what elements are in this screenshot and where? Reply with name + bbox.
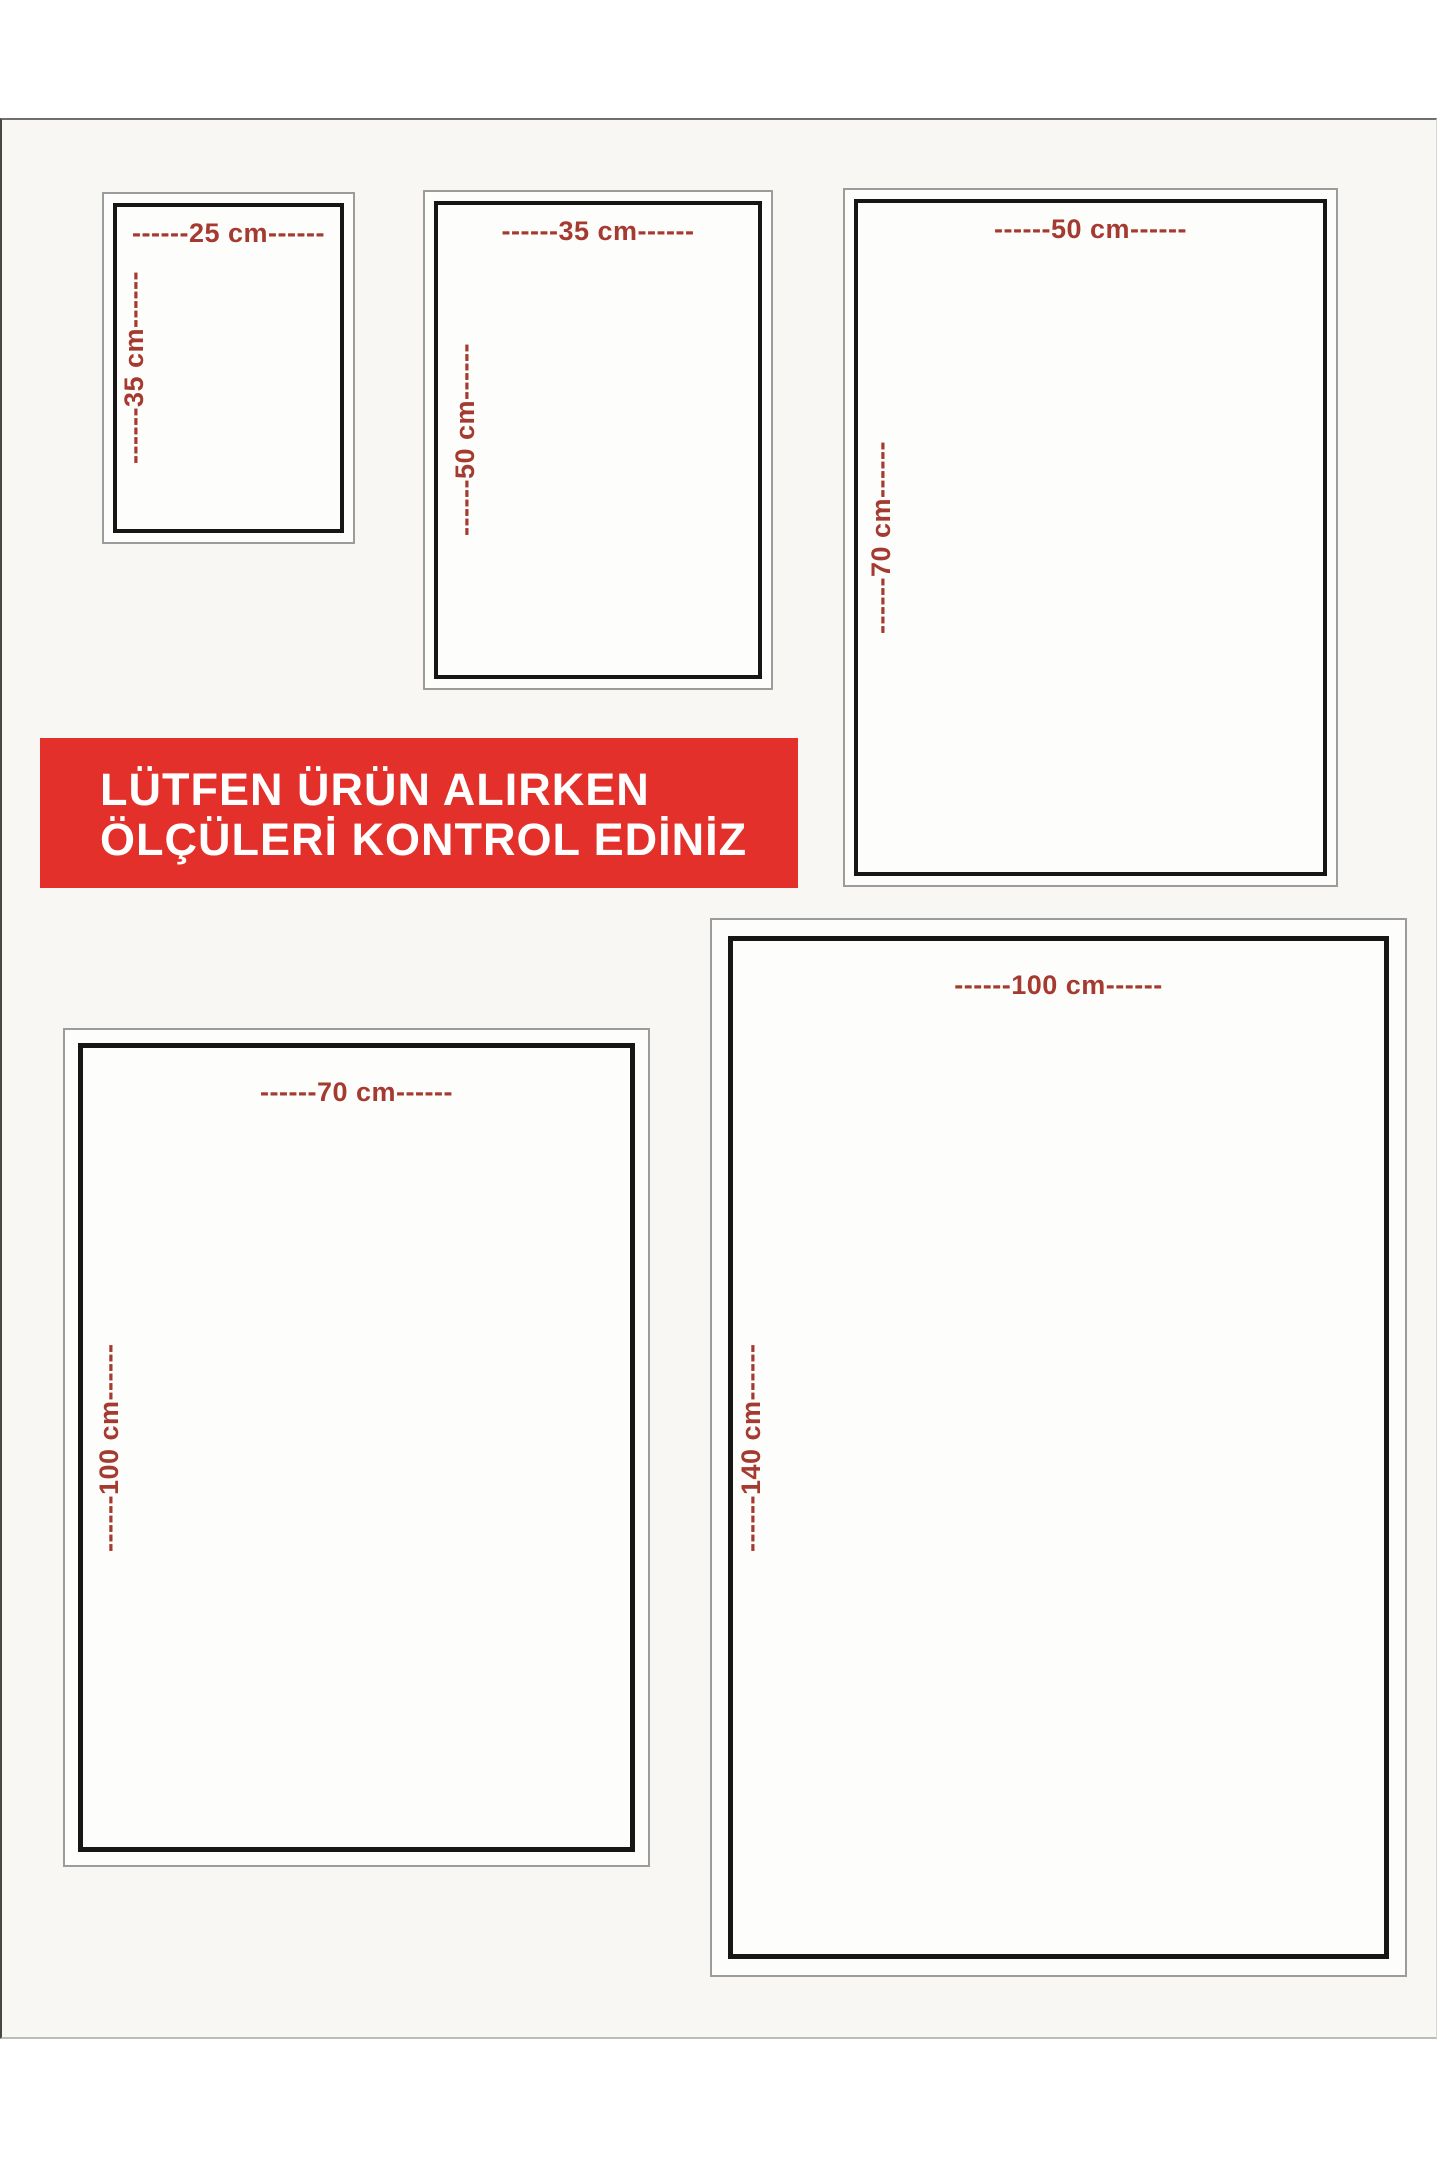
size-diagram-35x50: ------35 cm------ ------50 cm------ [423, 190, 773, 690]
height-dimension-label: ------50 cm------ [450, 205, 481, 675]
size-diagram-70x100: ------70 cm------ ------100 cm------ [63, 1028, 650, 1867]
width-dimension-label: ------70 cm------ [83, 1077, 630, 1108]
size-diagram-50x70: ------50 cm------ ------70 cm------ [843, 188, 1338, 887]
width-dimension-label: ------50 cm------ [858, 214, 1323, 245]
size-diagram-25x35: ------25 cm------ ------35 cm------ [102, 192, 355, 544]
height-dimension-label: ------140 cm------ [736, 941, 767, 1954]
width-dimension-label: ------35 cm------ [438, 216, 758, 247]
warning-text-line-2: ÖLÇÜLERİ KONTROL EDİNİZ [100, 815, 798, 865]
width-dimension-label: ------25 cm------ [117, 218, 340, 249]
size-frame-100x140: ------100 cm------ ------140 cm------ [728, 936, 1389, 1959]
size-guide-infographic: ------25 cm------ ------35 cm------ ----… [0, 0, 1440, 2160]
width-dimension-label: ------100 cm------ [733, 970, 1384, 1001]
size-diagram-100x140: ------100 cm------ ------140 cm------ [710, 918, 1407, 1977]
size-frame-50x70: ------50 cm------ ------70 cm------ [854, 199, 1327, 876]
size-frame-25x35: ------25 cm------ ------35 cm------ [113, 203, 344, 533]
height-dimension-label: ------35 cm------ [119, 207, 150, 529]
height-dimension-label: ------100 cm------ [94, 1048, 125, 1847]
warning-text-line-1: LÜTFEN ÜRÜN ALIRKEN [100, 765, 798, 815]
size-frame-70x100: ------70 cm------ ------100 cm------ [78, 1043, 635, 1852]
warning-banner: LÜTFEN ÜRÜN ALIRKEN ÖLÇÜLERİ KONTROL EDİ… [40, 738, 798, 888]
height-dimension-label: ------70 cm------ [866, 203, 897, 872]
size-frame-35x50: ------35 cm------ ------50 cm------ [434, 201, 762, 679]
